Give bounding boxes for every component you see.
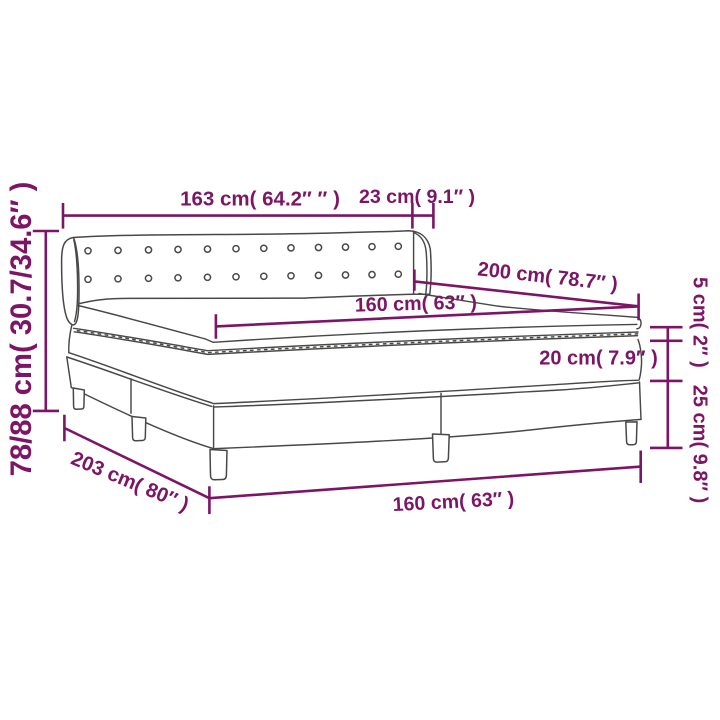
- svg-text:160 cm( 63″ ): 160 cm( 63″ ): [354, 291, 477, 316]
- svg-text:163 cm( 64.2″ ″ ): 163 cm( 64.2″ ″ ): [180, 188, 340, 211]
- svg-text:78/88 cm( 30.7/34.6″ ): 78/88 cm( 30.7/34.6″ ): [6, 182, 38, 477]
- svg-text:25 cm( 9.8″ ): 25 cm( 9.8″ ): [689, 385, 711, 504]
- svg-text:23 cm( 9.1″ ): 23 cm( 9.1″ ): [359, 186, 475, 208]
- svg-text:20 cm( 7.9″ ): 20 cm( 7.9″ ): [539, 348, 658, 370]
- svg-text:5 cm( 2″ ): 5 cm( 2″ ): [689, 277, 711, 368]
